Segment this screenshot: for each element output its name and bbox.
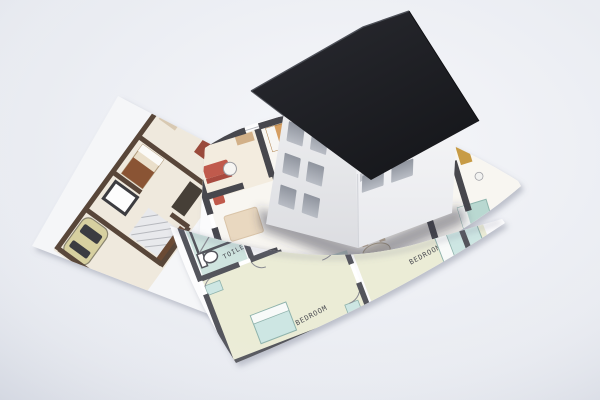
scene-canvas: SHWR TOILET BEDROOM BEDROOM bbox=[0, 0, 600, 400]
photo-scene: SHWR TOILET BEDROOM BEDROOM bbox=[0, 0, 600, 400]
vignette-overlay bbox=[0, 0, 600, 400]
